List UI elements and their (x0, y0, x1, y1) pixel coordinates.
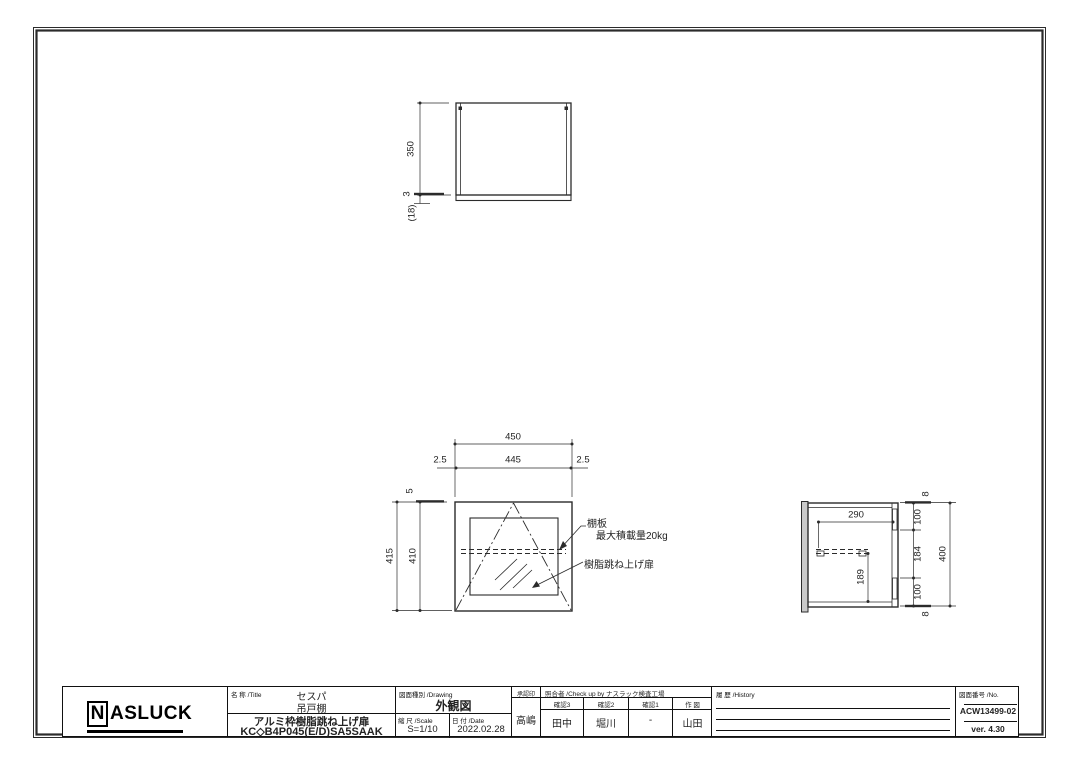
history-line (716, 730, 950, 731)
dim-top-gap: 3 (402, 191, 413, 196)
check-col-1-label: 確認1 (629, 699, 672, 710)
top-view-geometry (414, 102, 571, 204)
drawing-type: 外観図 (396, 697, 511, 714)
dim-side-seg-middle: 184 (913, 546, 924, 562)
date-cell: 日 付 /Date 2022.02.28 (449, 713, 512, 738)
dim-top-depth: 350 (406, 141, 417, 157)
number-label: 図面番号 /No. (959, 689, 999, 699)
version: ver. 4.30 (956, 724, 1020, 734)
check-col-3: 確認3 田中 (541, 697, 584, 736)
sheet-frame (34, 28, 1046, 738)
check-col-2: 確認2 堀川 (584, 697, 629, 736)
dim-side-inner-depth: 290 (848, 510, 864, 521)
approval-cell: 承認印 高嶋 (512, 687, 541, 736)
drawing-cell: 図面種別 /Drawing 外観図 縮 尺 /Scale S=1/10 日 付 … (396, 687, 512, 736)
history-label: 履 歴 /History (716, 689, 755, 699)
dim-side-seg-top: 8 (921, 491, 932, 496)
dim-front-edge-right: 2.5 (576, 455, 589, 466)
check-col-2-label: 確認2 (584, 699, 628, 710)
check-col-2-value: 堀川 (584, 715, 628, 730)
logo-text: ASLUCK (110, 703, 192, 725)
approval-value: 高嶋 (512, 712, 540, 727)
drawing-number: ACW13499-02 (956, 706, 1020, 716)
dim-front-edge-left: 2.5 (433, 455, 446, 466)
check-col-3-label: 確認3 (541, 699, 583, 710)
product-code: KC◇B4P045(E/D)SA5SAAK (228, 725, 395, 738)
dim-side-seg-bottom: 8 (921, 611, 932, 616)
title-cell: 名 称 /Title セスパ 吊戸棚 アルミ枠樹脂跳ね上げ扉 KC◇B4P045… (228, 687, 396, 736)
dim-front-height: 415 (385, 548, 396, 564)
check-col-draw: 作 図 山田 (673, 697, 712, 736)
history-line (716, 719, 950, 720)
note-door: 樹脂跳ね上げ扉 (584, 556, 654, 571)
scale-value: S=1/10 (396, 724, 449, 735)
check-col-draw-value: 山田 (673, 715, 712, 730)
logo-underline (87, 730, 183, 733)
dim-side-seg-upper: 100 (913, 509, 924, 525)
logo-cell: N ASLUCK (63, 687, 228, 736)
history-line (716, 708, 950, 709)
check-col-3-value: 田中 (541, 715, 583, 730)
check-cell: 照合者 /Check up by ナスラック検査工場 確認3 田中 確認2 堀川… (541, 687, 712, 736)
check-col-draw-label: 作 図 (673, 699, 712, 710)
note-shelf-load: 最大積載量20kg (596, 527, 668, 542)
check-col-1-value: - (629, 715, 672, 726)
date-value: 2022.02.28 (450, 724, 512, 735)
title-block: N ASLUCK 名 称 /Title セスパ 吊戸棚 アルミ枠樹脂跳ね上げ扉 … (62, 686, 1019, 737)
side-view-geometry (802, 501, 957, 612)
number-cell: 図面番号 /No. ACW13499-02 ver. 4.30 (956, 687, 1020, 736)
logo-initial: N (87, 701, 108, 727)
dim-front-width-inner: 445 (505, 455, 521, 466)
dim-front-top-gap: 5 (405, 488, 416, 493)
dim-side-shelf-height: 189 (856, 569, 867, 585)
scale-cell: 縮 尺 /Scale S=1/10 (396, 713, 449, 738)
drawing-geometry (0, 0, 1080, 764)
dim-front-height-body: 410 (408, 548, 419, 564)
dim-top-door: (18) (407, 205, 418, 222)
drawing-sheet: 350 3 (18) 450 445 2.5 2.5 415 410 5 棚板 … (0, 0, 1080, 764)
dim-side-seg-lower: 100 (913, 584, 924, 600)
history-cell: 履 歴 /History (712, 687, 956, 736)
front-view-geometry (392, 439, 588, 612)
dim-front-width: 450 (505, 432, 521, 443)
dim-side-height: 400 (938, 546, 949, 562)
check-col-1: 確認1 - (629, 697, 673, 736)
